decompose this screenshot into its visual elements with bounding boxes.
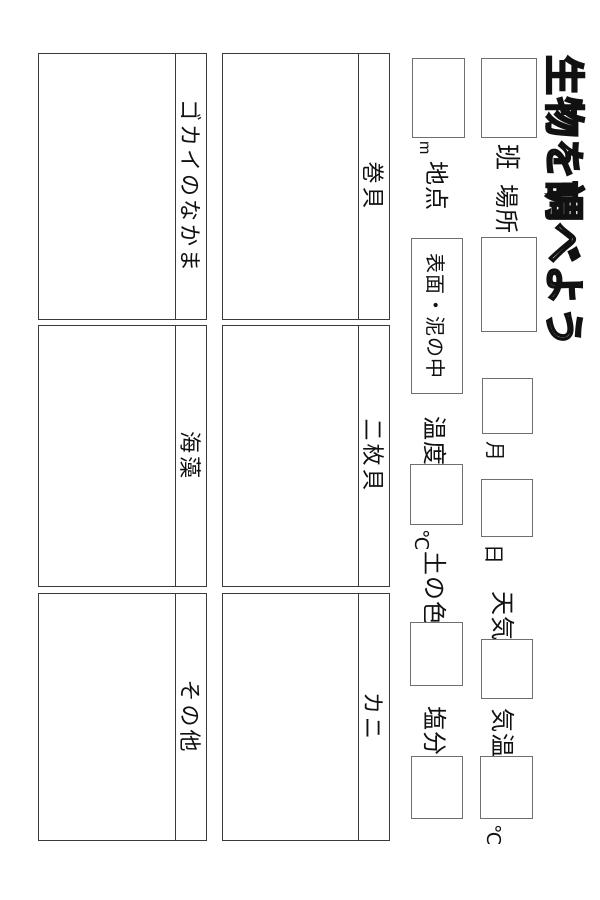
month-input-box[interactable] (482, 378, 533, 434)
record-cell-others-header: その他 (175, 594, 206, 840)
record-cell-seaweed-header: 海藻 (175, 326, 206, 586)
point-distance-input-box[interactable] (412, 58, 465, 138)
record-cell-seaweed-area[interactable] (39, 326, 175, 586)
record-cell-crabs-area[interactable] (223, 594, 358, 840)
weather-input-box[interactable] (481, 639, 533, 699)
worksheet-title: 生物を調べよう (540, 55, 596, 349)
record-cell-others: その他 (38, 593, 207, 841)
temperature-unit: ℃ (409, 529, 432, 550)
record-cell-snails-header: 巻貝 (358, 54, 389, 319)
record-cell-bivalves-header: 二枚貝 (358, 326, 389, 586)
record-cell-worms: ゴカイのなかま (38, 53, 207, 320)
record-cell-bivalves: 二枚貝 (222, 325, 390, 587)
salinity-input-box[interactable] (411, 756, 463, 819)
air-temp-unit: ℃ (481, 824, 504, 845)
group-label: 班 (481, 144, 537, 171)
month-label: 月 (480, 441, 533, 462)
worksheet-screenshot: 生物を調べよう 班 場所 月 日 天気 気温 ℃ m 地点 表面・泥の中 温度 … (0, 0, 600, 900)
record-cell-worms-area[interactable] (39, 54, 175, 319)
air-temp-label: 気温 (477, 708, 533, 758)
air-temp-input-box[interactable] (480, 756, 533, 819)
salinity-label: 塩分 (411, 706, 463, 756)
point-distance-unit: m (415, 141, 433, 154)
soil-color-input-box[interactable] (410, 622, 463, 686)
place-label: 場所 (481, 184, 537, 234)
record-cell-snails: 巻貝 (222, 53, 390, 320)
day-label: 日 (479, 544, 533, 565)
place-input-box[interactable] (481, 237, 537, 332)
record-cell-bivalves-area[interactable] (223, 326, 358, 586)
record-cell-snails-area[interactable] (223, 54, 358, 319)
record-cell-worms-header: ゴカイのなかま (175, 54, 206, 319)
day-input-box[interactable] (481, 479, 533, 537)
group-number-input-box[interactable] (481, 58, 537, 138)
record-cell-crabs: カニ (222, 593, 390, 841)
temperature-label: 温度 (411, 416, 463, 466)
soil-color-label: 土の色 (411, 551, 463, 626)
point-label: 地点 (412, 161, 465, 211)
record-cell-crabs-header: カニ (358, 594, 389, 840)
weather-label: 天気 (477, 591, 533, 641)
record-cell-others-area[interactable] (39, 594, 175, 840)
surface-mud-label-cell: 表面・泥の中 (411, 238, 463, 394)
worksheet-page: 生物を調べよう 班 場所 月 日 天気 気温 ℃ m 地点 表面・泥の中 温度 … (0, 0, 600, 900)
record-cell-seaweed: 海藻 (38, 325, 207, 587)
temperature-input-box[interactable] (410, 464, 463, 525)
